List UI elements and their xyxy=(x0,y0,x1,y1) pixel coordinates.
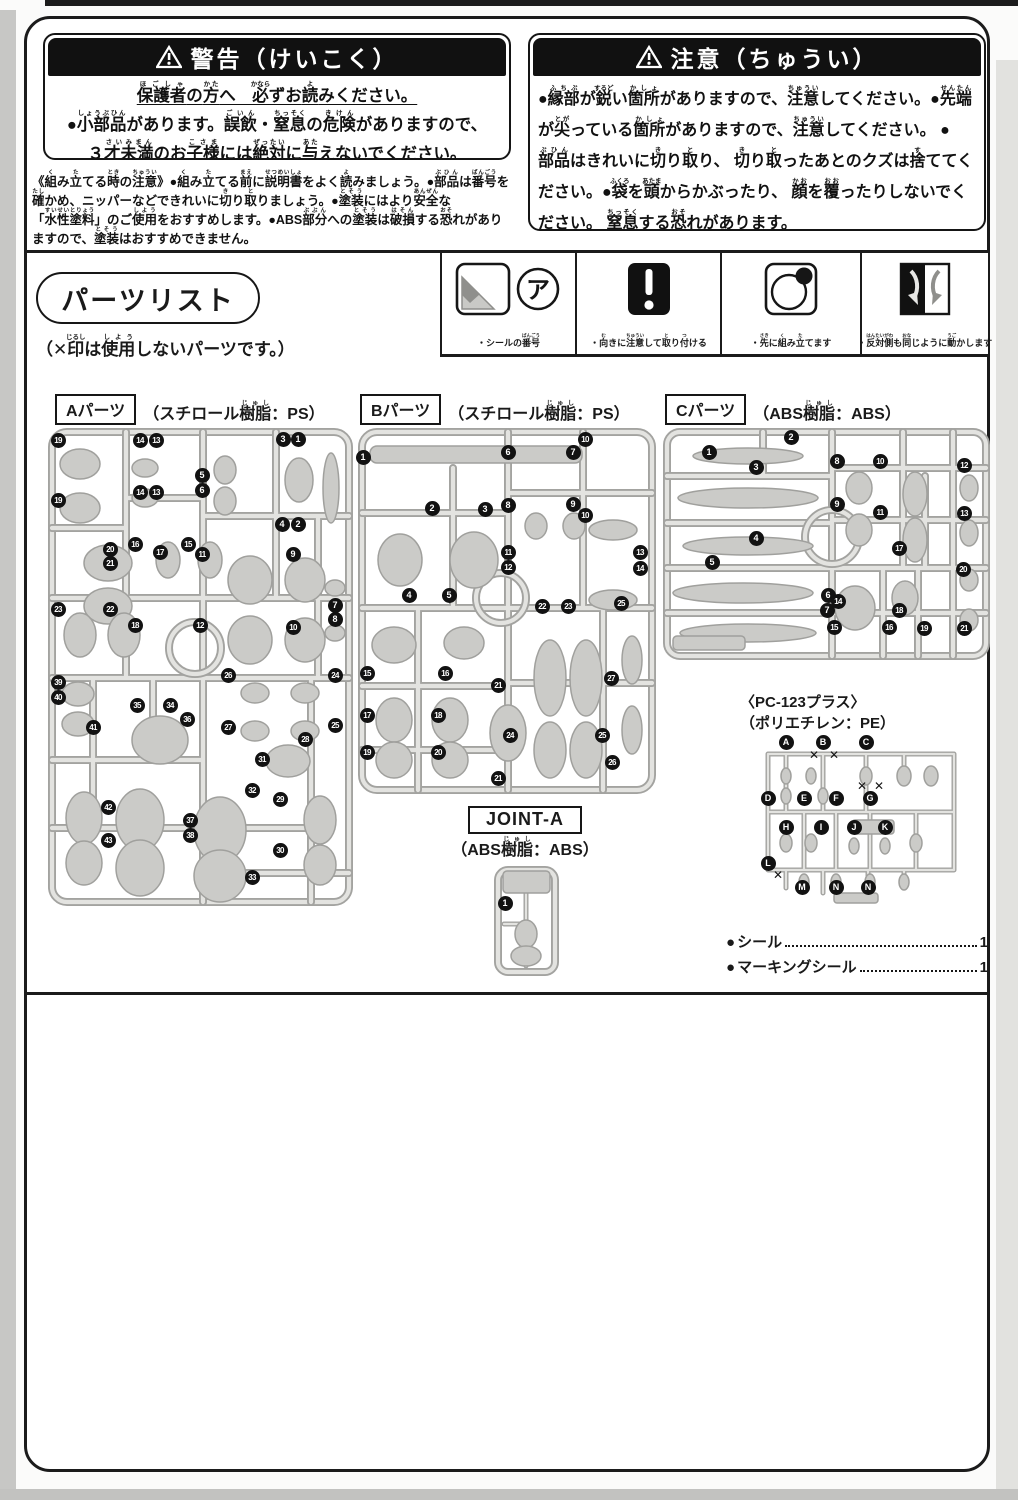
legend-caption: ・先さきに組くみ立たてます xyxy=(751,333,832,349)
accessory-label: シール xyxy=(737,930,782,955)
part-number-badge: 9 xyxy=(566,497,581,512)
part-number-badge: 19 xyxy=(360,745,375,760)
unused-part-x-mark: ✕ xyxy=(857,779,867,793)
part-number-badge: 10 xyxy=(286,620,301,635)
part-number-badge: 39 xyxy=(51,675,66,690)
pc-runner-material: （ポリエチレン：PE） xyxy=(740,713,895,734)
orientation-warning-icon xyxy=(622,261,676,317)
part-number-badge: 30 xyxy=(273,843,288,858)
legend-caption: ・向むきに注意ちゅういして取とり付つける xyxy=(590,333,707,349)
part-number-badge: 16 xyxy=(882,620,897,635)
part-number-badge: 19 xyxy=(51,433,66,448)
accessory-marking-seal: ● マーキングシール 1 xyxy=(726,955,988,980)
assemble-first-icon xyxy=(763,261,819,317)
runner-a-sprue xyxy=(48,428,353,906)
part-number-badge: 13 xyxy=(149,433,164,448)
part-number-badge: 34 xyxy=(163,698,178,713)
legend-caption: ・反対側はんたいがわも同おなじように動うごかします xyxy=(857,333,992,349)
runner-a-label: Aパーツ xyxy=(55,394,136,425)
runner-b-label-row: Bパーツ （スチロール樹脂じゅし：PS） xyxy=(360,394,630,425)
part-number-badge: E xyxy=(797,791,812,806)
part-number-badge: 20 xyxy=(103,542,118,557)
part-number-badge: 13 xyxy=(957,506,972,521)
part-number-badge: 43 xyxy=(101,833,116,848)
part-number-badge: 8 xyxy=(830,454,845,469)
runner-joint-a-diagram: 1 xyxy=(494,866,559,976)
runner-c-material: （ABS樹脂じゅし：ABS） xyxy=(753,400,901,425)
unused-part-x-mark: ✕ xyxy=(829,748,839,762)
part-number-badge: 9 xyxy=(286,547,301,562)
part-number-badge: 40 xyxy=(51,690,66,705)
part-number-badge: F xyxy=(829,791,844,806)
part-number-badge: 21 xyxy=(957,621,972,636)
part-number-badge: 37 xyxy=(183,813,198,828)
caution-box: 注意（ちゅうい） ●縁部ふちぶが鋭するどい箇所かしょがありますので、注意ちゅうい… xyxy=(528,33,986,231)
runner-a-material: （スチロール樹脂じゅし：PS） xyxy=(143,400,324,425)
runner-c-diagram: 123810129111345172061471815161921 xyxy=(663,428,990,660)
part-number-badge: 9 xyxy=(830,497,845,512)
part-number-badge: 18 xyxy=(431,708,446,723)
caution-body: ●縁部ふちぶが鋭するどい箇所かしょがありますので、注意ちゅういしてください。●先… xyxy=(530,79,984,231)
unused-part-x-mark: ✕ xyxy=(809,748,819,762)
part-number-badge: 27 xyxy=(221,720,236,735)
unused-part-x-mark: ✕ xyxy=(874,779,884,793)
part-number-badge: 2 xyxy=(784,430,799,445)
part-number-badge: 7 xyxy=(820,603,835,618)
accessory-label: マーキングシール xyxy=(737,955,857,980)
part-number-badge: 33 xyxy=(245,870,260,885)
part-number-badge: K xyxy=(878,820,893,835)
part-number-badge: 2 xyxy=(425,501,440,516)
unused-part-x-mark: ✕ xyxy=(773,868,783,882)
part-number-badge: 10 xyxy=(578,508,593,523)
part-number-badge: 10 xyxy=(578,432,593,447)
part-number-badge: 5 xyxy=(195,468,210,483)
part-number-badge: 20 xyxy=(956,562,971,577)
part-number-badge: 2 xyxy=(291,517,306,532)
accessory-qty: 1 xyxy=(980,930,988,955)
part-number-badge: 28 xyxy=(298,732,313,747)
legend-mirror-motion: ・反対側はんたいがわも同おなじように動うごかします xyxy=(862,253,988,354)
part-number-badge: 35 xyxy=(130,698,145,713)
scan-bottom-edge xyxy=(0,1489,1018,1500)
dotted-leader xyxy=(785,945,977,947)
warning-body: 保護者ほごしゃの方かたへ 必かならずお読よみください。 ●小部品しょうぶひんがあ… xyxy=(45,79,509,160)
warning-title-bar: 警告（けいこく） xyxy=(48,38,506,76)
part-number-badge: 41 xyxy=(86,720,101,735)
part-number-badge: 3 xyxy=(276,432,291,447)
part-number-badge: 17 xyxy=(360,708,375,723)
scan-right-edge xyxy=(996,60,1018,1500)
warning-line-guardian: 保護者ほごしゃの方かたへ 必かならずお読よみください。 xyxy=(53,81,501,110)
part-number-badge: 25 xyxy=(614,596,629,611)
caution-title-bar: 注意（ちゅうい） xyxy=(533,38,981,76)
runner-a-label-row: Aパーツ （スチロール樹脂じゅし：PS） xyxy=(55,394,325,425)
warning-triangle-icon xyxy=(156,45,182,69)
joint-a-material: （ABS樹脂じゅし：ABS） xyxy=(440,836,610,860)
accessory-qty: 1 xyxy=(980,955,988,980)
legend-assemble-first: ・先さきに組くみ立たてます xyxy=(722,253,862,354)
part-number-badge: 24 xyxy=(503,728,518,743)
part-number-badge: 10 xyxy=(873,454,888,469)
bullet-icon: ● xyxy=(726,955,735,980)
part-number-badge: 42 xyxy=(101,800,116,815)
part-number-badge: H xyxy=(779,820,794,835)
part-number-badge: 21 xyxy=(491,678,506,693)
part-number-badge: 14 xyxy=(633,561,648,576)
pc-runner-name: 〈PC-123プラス〉 xyxy=(740,692,895,713)
part-number-badge: 13 xyxy=(633,545,648,560)
warning-box: 警告（けいこく） 保護者ほごしゃの方かたへ 必かならずお読よみください。 ●小部… xyxy=(43,33,511,160)
runner-b-diagram: 1671023891011121314452223251516212717182… xyxy=(358,428,656,794)
part-number-badge: 14 xyxy=(133,433,148,448)
part-number-badge: 5 xyxy=(705,555,720,570)
part-number-badge: 3 xyxy=(478,502,493,517)
part-number-badge: 21 xyxy=(491,771,506,786)
part-number-badge: C xyxy=(859,735,874,750)
part-number-badge: 4 xyxy=(749,531,764,546)
part-number-badge: 14 xyxy=(133,485,148,500)
part-number-badge: 5 xyxy=(442,588,457,603)
part-number-badge: 26 xyxy=(605,755,620,770)
part-number-badge: 6 xyxy=(501,445,516,460)
part-number-badge: 24 xyxy=(328,668,343,683)
runner-c-label: Cパーツ xyxy=(665,394,746,425)
part-number-badge: 1 xyxy=(702,445,717,460)
warning-line-age: ３才未満さいみまんのお子様こさまには絶対ぜったいに与あたえないでください。 xyxy=(53,139,501,160)
part-number-badge: 8 xyxy=(328,612,343,627)
section-divider-bottom xyxy=(26,992,988,995)
part-number-badge: 26 xyxy=(221,668,236,683)
part-number-badge: 23 xyxy=(51,602,66,617)
part-number-badge: 25 xyxy=(595,728,610,743)
part-number-badge: 38 xyxy=(183,828,198,843)
part-number-badge: 16 xyxy=(438,666,453,681)
part-number-badge: 7 xyxy=(566,445,581,460)
warning-line-small-parts: ●小部品しょうぶひんがあります。誤飲ごいん・窒息ちっそくの危険きけんがありますの… xyxy=(53,110,501,139)
part-number-badge: 25 xyxy=(328,718,343,733)
part-number-badge: I xyxy=(814,820,829,835)
sticker-letter: ア xyxy=(526,277,550,304)
part-number-badge: 31 xyxy=(255,752,270,767)
part-number-badge: 21 xyxy=(103,556,118,571)
part-number-badge: 12 xyxy=(957,458,972,473)
part-number-badge: 27 xyxy=(604,671,619,686)
part-number-badge: 17 xyxy=(153,545,168,560)
part-number-badge: 1 xyxy=(356,450,371,465)
parts-list-title: パーツリスト xyxy=(36,272,260,324)
part-number-badge: 32 xyxy=(245,783,260,798)
part-number-badge: 4 xyxy=(402,588,417,603)
legend-caption: ・シールの番号ばんごう xyxy=(477,333,540,349)
part-number-badge: 19 xyxy=(51,493,66,508)
runner-b-material: （スチロール樹脂じゅし：PS） xyxy=(448,400,629,425)
part-number-badge: J xyxy=(847,820,862,835)
part-number-badge: 8 xyxy=(501,498,516,513)
joint-a-label: JOINT-A xyxy=(468,806,582,834)
unused-parts-note: （✕印じるしは使用しようしないパーツです。） xyxy=(36,334,295,360)
part-number-badge: 15 xyxy=(360,666,375,681)
part-number-badge: 13 xyxy=(149,485,164,500)
runner-b-label: Bパーツ xyxy=(360,394,441,425)
symbol-legend: ア ・シールの番号ばんごう ・向むきに注意ちゅういして取とり付つける ・先さきに… xyxy=(440,253,988,357)
part-number-badge: 11 xyxy=(195,547,210,562)
part-number-badge: 12 xyxy=(193,618,208,633)
runner-a-diagram: 1914133156141319421615201711921782322181… xyxy=(48,428,353,906)
part-number-badge: 11 xyxy=(873,505,888,520)
part-number-badge: 6 xyxy=(195,483,210,498)
sticker-number-icon: ア xyxy=(454,261,564,317)
caution-text-edges: ●縁部ふちぶが鋭するどい箇所かしょがありますので、注意ちゅういしてください。●先… xyxy=(538,91,972,139)
part-number-badge: 11 xyxy=(501,545,516,560)
part-number-badge: 12 xyxy=(501,560,516,575)
runner-c-label-row: Cパーツ （ABS樹脂じゅし：ABS） xyxy=(665,394,901,425)
part-number-badge: 22 xyxy=(535,599,550,614)
part-number-badge: 23 xyxy=(561,599,576,614)
pc-runner-label: 〈PC-123プラス〉 （ポリエチレン：PE） xyxy=(740,692,895,734)
part-number-badge: N xyxy=(861,880,876,895)
part-number-badge: 17 xyxy=(892,541,907,556)
runner-pc-diagram: ABCDEFGHIJKLMNN✕✕✕✕✕ xyxy=(756,738,966,905)
part-number-badge: 22 xyxy=(103,602,118,617)
instruction-manual-page: 警告（けいこく） 保護者ほごしゃの方かたへ 必かならずお読よみください。 ●小部… xyxy=(0,0,1018,1500)
mirror-motion-icon xyxy=(898,261,952,317)
part-number-badge: 19 xyxy=(917,621,932,636)
caution-title: 注意（ちゅうい） xyxy=(671,40,879,74)
part-number-badge: 20 xyxy=(431,745,446,760)
scan-top-edge xyxy=(45,0,1018,6)
scan-left-edge xyxy=(0,10,16,1500)
part-number-badge: 7 xyxy=(328,598,343,613)
part-number-badge: 18 xyxy=(128,618,143,633)
part-number-badge: D xyxy=(761,791,776,806)
part-number-badge: 1 xyxy=(498,896,513,911)
part-number-badge: 18 xyxy=(892,603,907,618)
part-number-badge: 1 xyxy=(291,432,306,447)
part-number-badge: 16 xyxy=(128,537,143,552)
caution-triangle-icon xyxy=(636,45,662,69)
bullet-icon: ● xyxy=(726,930,735,955)
part-number-badge: 15 xyxy=(181,537,196,552)
part-number-badge: N xyxy=(829,880,844,895)
legend-orientation: ・向むきに注意ちゅういして取とり付つける xyxy=(577,253,722,354)
part-number-badge: 36 xyxy=(180,712,195,727)
accessories-list: ● シール 1 ● マーキングシール 1 xyxy=(726,930,988,980)
dotted-leader xyxy=(860,970,977,972)
part-number-badge: M xyxy=(795,880,810,895)
warning-title: 警告（けいこく） xyxy=(191,40,399,74)
part-number-badge: 15 xyxy=(827,620,842,635)
part-number-badge: 3 xyxy=(749,460,764,475)
part-number-badge: 4 xyxy=(275,517,290,532)
part-number-badge: 29 xyxy=(273,792,288,807)
legend-sticker-number: ア ・シールの番号ばんごう xyxy=(442,253,577,354)
accessory-seal: ● シール 1 xyxy=(726,930,988,955)
part-number-badge: A xyxy=(779,735,794,750)
runner-joint-a-sprue xyxy=(494,866,559,976)
assembly-notes: 《組くみ立たてる時ときの注意ちゅうい》●組くみ立たてる前まえに説明書せつめいしょ… xyxy=(32,170,514,248)
